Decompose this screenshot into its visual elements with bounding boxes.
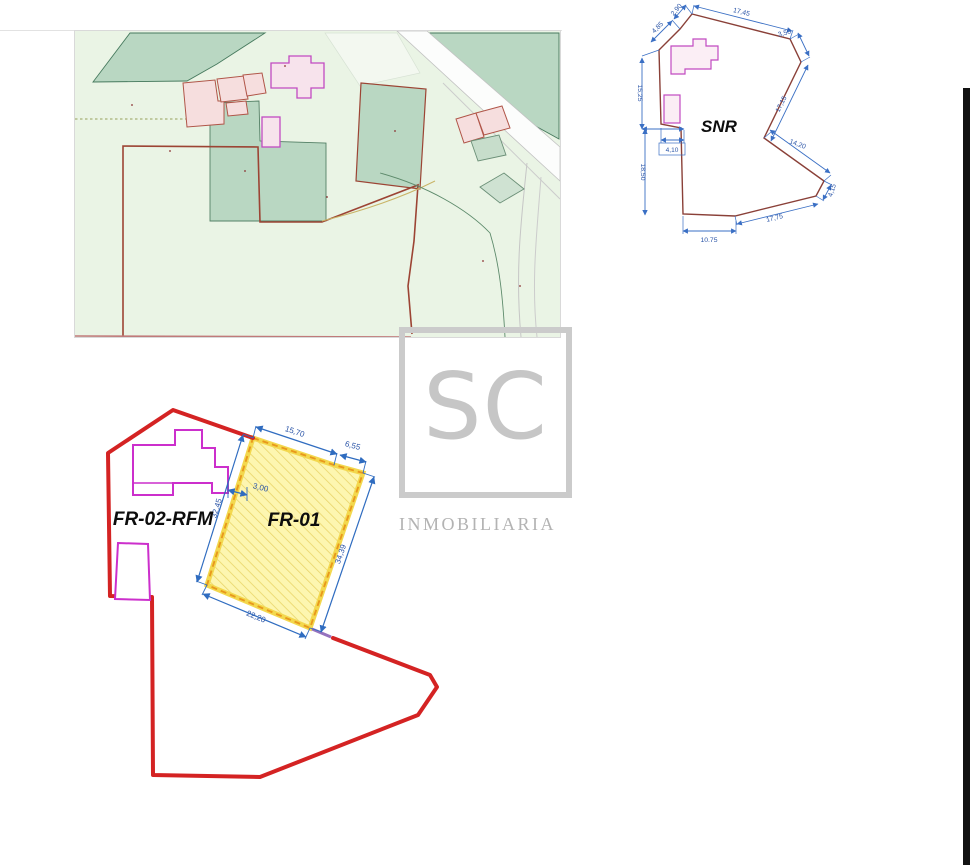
watermark-logo-frame: SC (399, 327, 572, 498)
fr02-building-main (133, 430, 228, 495)
page-edge-strip (963, 88, 970, 865)
map-parcel-wood-east (356, 83, 426, 189)
snr-dim-east: 17,15 (775, 95, 789, 114)
fr02-building-annex (115, 543, 150, 600)
snr-dim-left-lower: 18,50 (639, 163, 646, 180)
snr-dim-ne: 3,50 (777, 28, 792, 38)
snr-dim-bottom: 10,75 (700, 237, 717, 242)
snr-survey: 4,85 2,90 17,45 3,50 17,15 14,20 4,15 17… (628, 2, 852, 242)
cadastral-map-panel (74, 30, 561, 338)
snr-dim-south: 17,75 (766, 213, 784, 224)
watermark-logo: SC (423, 353, 548, 460)
snr-parcel-diagram: 4,85 2,90 17,45 3,50 17,15 14,20 4,15 17… (628, 2, 852, 242)
snr-building-large (671, 39, 718, 74)
survey-sheet: 4,85 2,90 17,45 3,50 17,15 14,20 4,15 17… (0, 0, 970, 865)
map-bottom-boundary (75, 336, 411, 337)
map-building (243, 73, 266, 96)
map-building (226, 101, 248, 116)
plan-dim-top-right: 6,55 (344, 439, 362, 452)
snr-dim-se1: 14,20 (788, 138, 807, 150)
map-building-magenta-small (262, 117, 280, 147)
snr-dim-se2: 4,15 (827, 183, 838, 198)
snr-boundary (659, 14, 824, 216)
fr01-parcel-label: FR-01 (268, 510, 321, 531)
subdivision-survey: 15,70 6,55 3,00 32,45 34,39 22,20 FR-02-… (100, 403, 446, 795)
snr-dim-notch: 4,10 (666, 147, 679, 154)
fr02-parcel-label: FR-02-RFM (113, 509, 214, 530)
subdivision-plan: 15,70 6,55 3,00 32,45 34,39 22,20 FR-02-… (100, 403, 446, 795)
snr-dim-sw: 4,85 (651, 21, 665, 35)
map-building (217, 76, 248, 102)
snr-buildings (664, 39, 718, 123)
watermark-brand: INMOBILIARIA (399, 514, 556, 535)
snr-parcel-label: SNR (701, 117, 738, 136)
snr-dim-left-upper: 15,25 (636, 84, 643, 101)
snr-building-small (664, 95, 680, 123)
cadastral-map (75, 31, 560, 337)
